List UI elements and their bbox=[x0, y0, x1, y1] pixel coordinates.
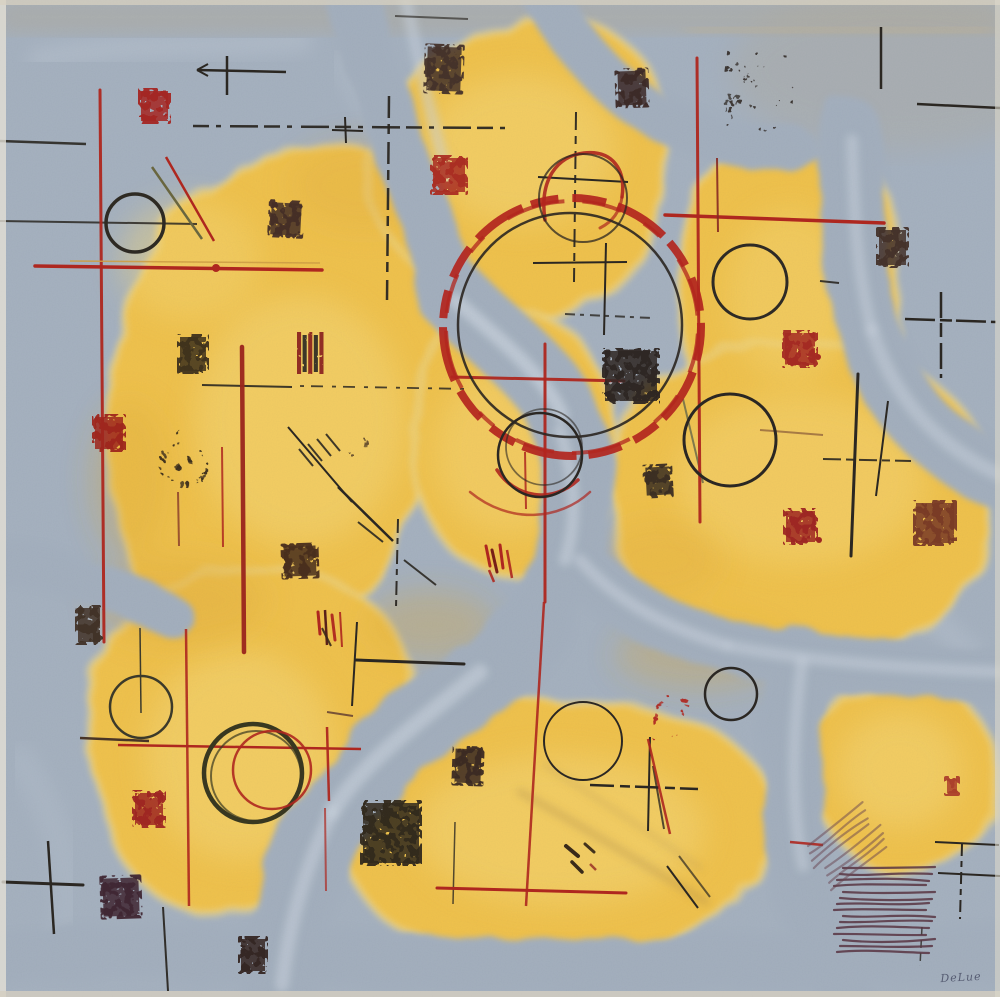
paper-grain bbox=[0, 0, 1000, 997]
canvas-edge bbox=[995, 0, 1000, 997]
canvas-edge bbox=[0, 0, 6, 997]
canvas-edge bbox=[0, 991, 1000, 997]
canvas-edge bbox=[0, 0, 1000, 5]
abstract-painting: DeLue bbox=[0, 0, 1000, 997]
painting-canvas bbox=[0, 0, 1000, 997]
